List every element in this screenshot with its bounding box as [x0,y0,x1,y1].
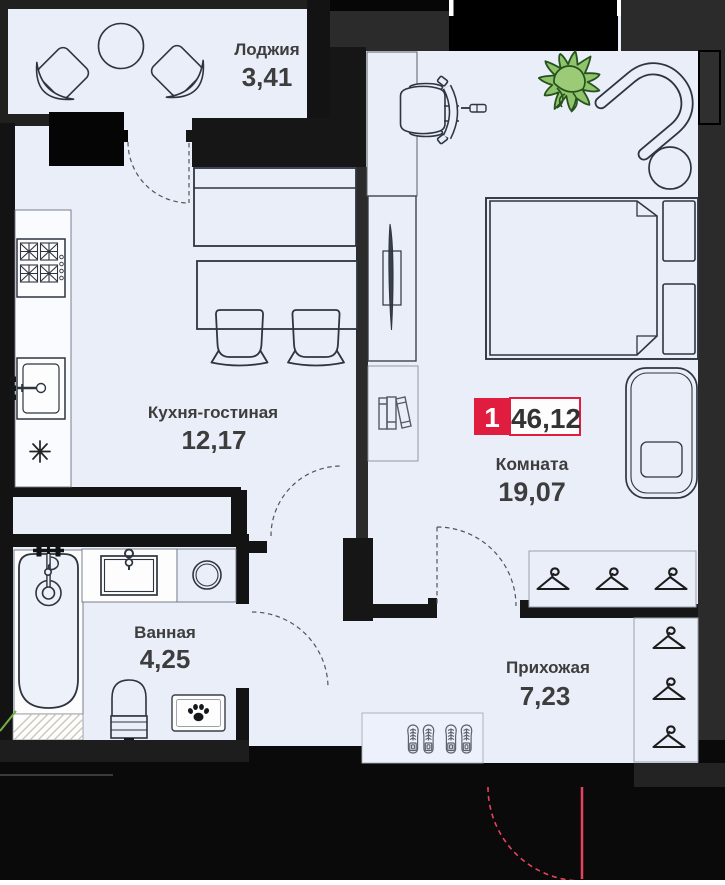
svg-text:Комната: Комната [496,454,569,474]
svg-text:Кухня-гостиная: Кухня-гостиная [148,403,278,422]
svg-text:3,41: 3,41 [242,62,293,92]
svg-text:1: 1 [484,402,500,433]
svg-text:46,12: 46,12 [511,403,581,434]
svg-text:19,07: 19,07 [498,477,566,507]
svg-text:12,17: 12,17 [181,425,246,455]
svg-text:Прихожая: Прихожая [506,658,590,677]
svg-text:7,23: 7,23 [520,681,571,711]
svg-text:Лоджия: Лоджия [234,40,299,59]
svg-text:Ванная: Ванная [134,623,196,642]
svg-text:4,25: 4,25 [140,644,191,674]
